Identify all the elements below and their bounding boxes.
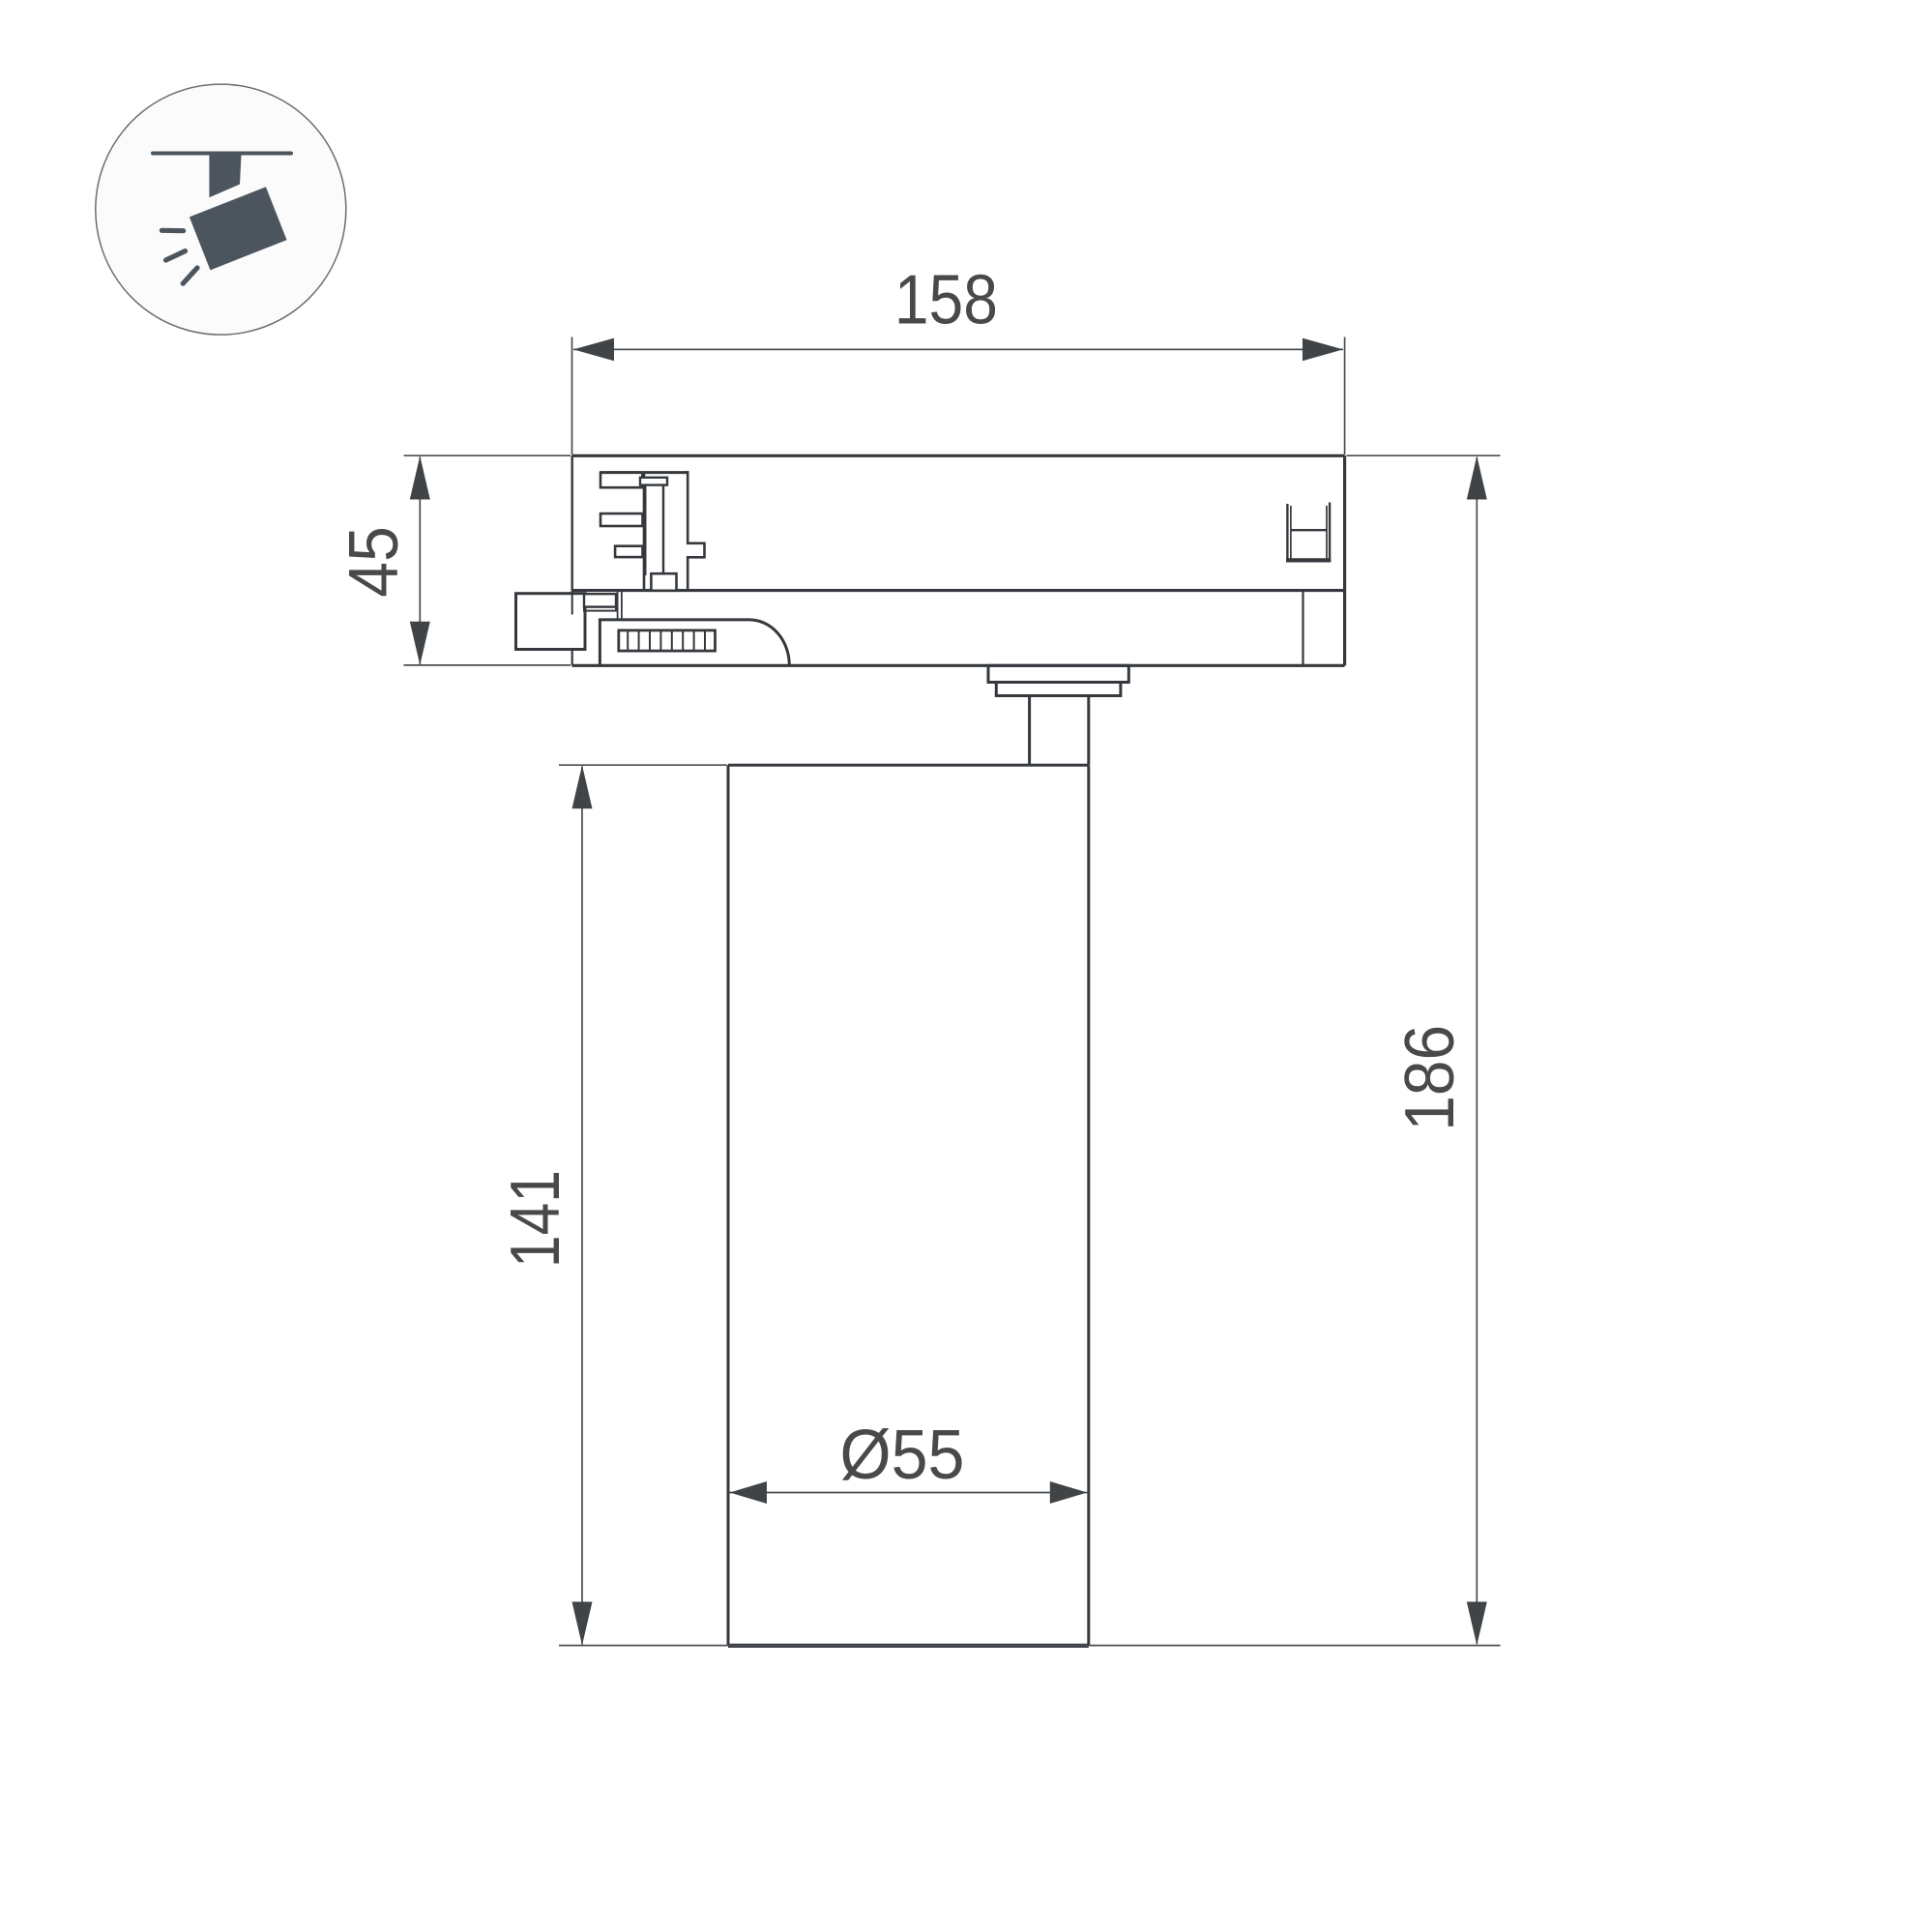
svg-text:Ø55: Ø55 xyxy=(840,1417,965,1494)
svg-text:186: 186 xyxy=(1391,1025,1469,1131)
svg-text:45: 45 xyxy=(336,526,413,598)
svg-text:141: 141 xyxy=(497,1170,574,1268)
svg-text:158: 158 xyxy=(894,262,998,339)
